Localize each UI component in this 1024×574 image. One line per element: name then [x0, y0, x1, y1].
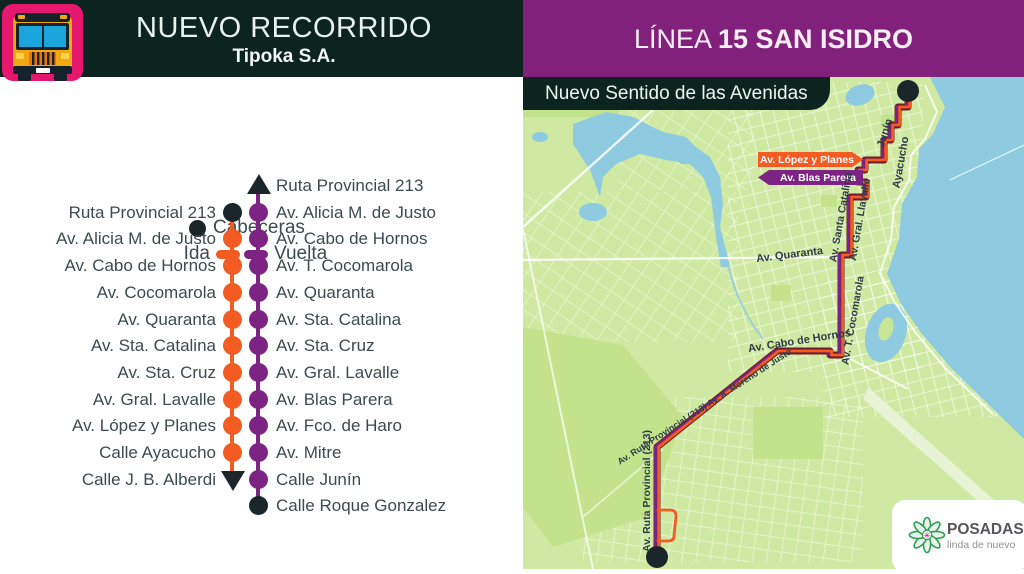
route-stop-row: Calle AyacuchoAv. Mitre — [0, 439, 523, 466]
stop-label-vuelta: Av. Quaranta — [276, 279, 375, 306]
banner-lopez-y-planes: Av. López y Planes — [760, 154, 854, 166]
stop-label-ida: Av. Sta. Cruz — [0, 359, 216, 386]
stop-label-vuelta: Av. Sta. Catalina — [276, 306, 401, 333]
stop-label-vuelta: Av. Alicia M. de Justo — [276, 199, 436, 226]
ida-stop-node-icon — [223, 310, 242, 329]
route-stop-row: Av. Gral. LavalleAv. Blas Parera — [0, 386, 523, 413]
stop-label-vuelta: Av. Sta. Cruz — [276, 332, 375, 359]
stop-label-ida: Av. Gral. Lavalle — [0, 386, 216, 413]
stop-label-vuelta: Av. Blas Parera — [276, 386, 393, 413]
svg-text:✳: ✳ — [923, 530, 931, 540]
ida-stop-node-icon — [223, 443, 242, 462]
vuelta-stop-node-icon — [249, 283, 268, 302]
stop-label-ida: Calle Ayacucho — [0, 439, 216, 466]
line-header: LÍNEA 15 SAN ISIDRO — [523, 0, 1024, 77]
ida-stop-node-icon — [223, 229, 242, 248]
stop-label-vuelta: Av. Gral. Lavalle — [276, 359, 399, 386]
vuelta-stop-node-icon — [249, 256, 268, 275]
route-stop-row: Av. Cabo de HornosAv. T. Cocomarola — [0, 252, 523, 279]
route-stop-row: Av. Sta. CruzAv. Gral. Lavalle — [0, 359, 523, 386]
stop-label-ida: Av. Alicia M. de Justo — [0, 225, 216, 252]
map-badge: Nuevo Sentido de las Avenidas — [523, 77, 830, 110]
vuelta-stop-node-icon — [249, 310, 268, 329]
vuelta-stop-node-icon — [249, 229, 268, 248]
route-stop-row: Av. López y PlanesAv. Fco. de Haro — [0, 412, 523, 439]
city-map: Av. López y Planes Av. Blas Parera Junín… — [523, 77, 1024, 569]
route-stop-diagram: Ruta Provincial 213Ruta Provincial 213Av… — [0, 172, 523, 522]
map-panel: LÍNEA 15 SAN ISIDRO Nuevo Sentido de las… — [523, 0, 1024, 569]
poster-title: NUEVO RECORRIDO — [80, 12, 488, 45]
stop-label-vuelta: Calle Roque Gonzalez — [276, 492, 446, 519]
bus-icon — [2, 3, 84, 82]
legend: Cabeceras Ida Vuelta — [0, 106, 523, 166]
cabecera-node-icon — [223, 203, 242, 222]
route-stop-row: Av. QuarantaAv. Sta. Catalina — [0, 306, 523, 333]
route-stop-row: Calle J. B. AlberdiCalle Junín — [0, 466, 523, 493]
stop-label-vuelta: Av. Cabo de Hornos — [276, 225, 428, 252]
ida-stop-node-icon — [223, 416, 242, 435]
posadas-flower-icon: ✳ — [910, 518, 945, 553]
left-panel: NUEVO RECORRIDO Tipoka S.A. Cabeceras Id… — [0, 0, 523, 569]
stop-label-ida: Av. Cocomarola — [0, 279, 216, 306]
ida-end-arrow-icon — [221, 471, 245, 491]
company-name: Tipoka S.A. — [80, 46, 488, 68]
ida-stop-node-icon — [223, 363, 242, 382]
ida-stop-node-icon — [223, 256, 242, 275]
route-stop-row: Av. CocomarolaAv. Quaranta — [0, 279, 523, 306]
ida-stop-node-icon — [223, 336, 242, 355]
route-stop-row: Calle Roque Gonzalez — [0, 492, 523, 519]
route-stop-row: Ruta Provincial 213 — [0, 172, 523, 199]
stop-label-vuelta: Av. Mitre — [276, 439, 342, 466]
posadas-logo-tagline: linda de nuevo — [947, 539, 1015, 551]
stop-label-ida: Av. Sta. Catalina — [0, 332, 216, 359]
cabecera-node-icon — [249, 496, 268, 515]
vuelta-stop-node-icon — [249, 363, 268, 382]
vuelta-stop-node-icon — [249, 390, 268, 409]
transit-route-poster: { "header": { "title": "NUEVO RECORRIDO"… — [0, 0, 1024, 569]
route-stop-row: Av. Alicia M. de JustoAv. Cabo de Hornos — [0, 225, 523, 252]
route-stop-row: Ruta Provincial 213Av. Alicia M. de Just… — [0, 199, 523, 226]
stop-label-ida: Av. Quaranta — [0, 306, 216, 333]
stop-label-ida: Av. López y Planes — [0, 412, 216, 439]
vuelta-start-arrow-icon — [247, 174, 271, 194]
line-name: 15 SAN ISIDRO — [718, 24, 913, 54]
map-street-label: Av. Ruta Provincial (213) — [641, 430, 653, 552]
stop-label-vuelta: Av. T. Cocomarola — [276, 252, 413, 279]
stop-label-vuelta: Ruta Provincial 213 — [276, 172, 423, 199]
vuelta-stop-node-icon — [249, 203, 268, 222]
route-stop-row: Av. Sta. CatalinaAv. Sta. Cruz — [0, 332, 523, 359]
posadas-logo: ✳ POSADAS linda de nuevo — [892, 500, 1024, 569]
ida-stop-node-icon — [223, 283, 242, 302]
ida-stop-node-icon — [223, 390, 242, 409]
map-badge-label: Nuevo Sentido de las Avenidas — [523, 77, 830, 110]
posadas-logo-name: POSADAS — [947, 521, 1024, 538]
stop-label-ida: Ruta Provincial 213 — [0, 199, 216, 226]
stop-label-vuelta: Av. Fco. de Haro — [276, 412, 402, 439]
stop-label-vuelta: Calle Junín — [276, 466, 361, 493]
vuelta-stop-node-icon — [249, 416, 268, 435]
stop-label-ida: Av. Cabo de Hornos — [0, 252, 216, 279]
vuelta-stop-node-icon — [249, 470, 268, 489]
vuelta-stop-node-icon — [249, 336, 268, 355]
vuelta-stop-node-icon — [249, 443, 268, 462]
cabecera-north-dot — [897, 80, 919, 102]
stop-label-ida: Calle J. B. Alberdi — [0, 466, 216, 493]
line-prefix: LÍNEA — [634, 24, 718, 54]
